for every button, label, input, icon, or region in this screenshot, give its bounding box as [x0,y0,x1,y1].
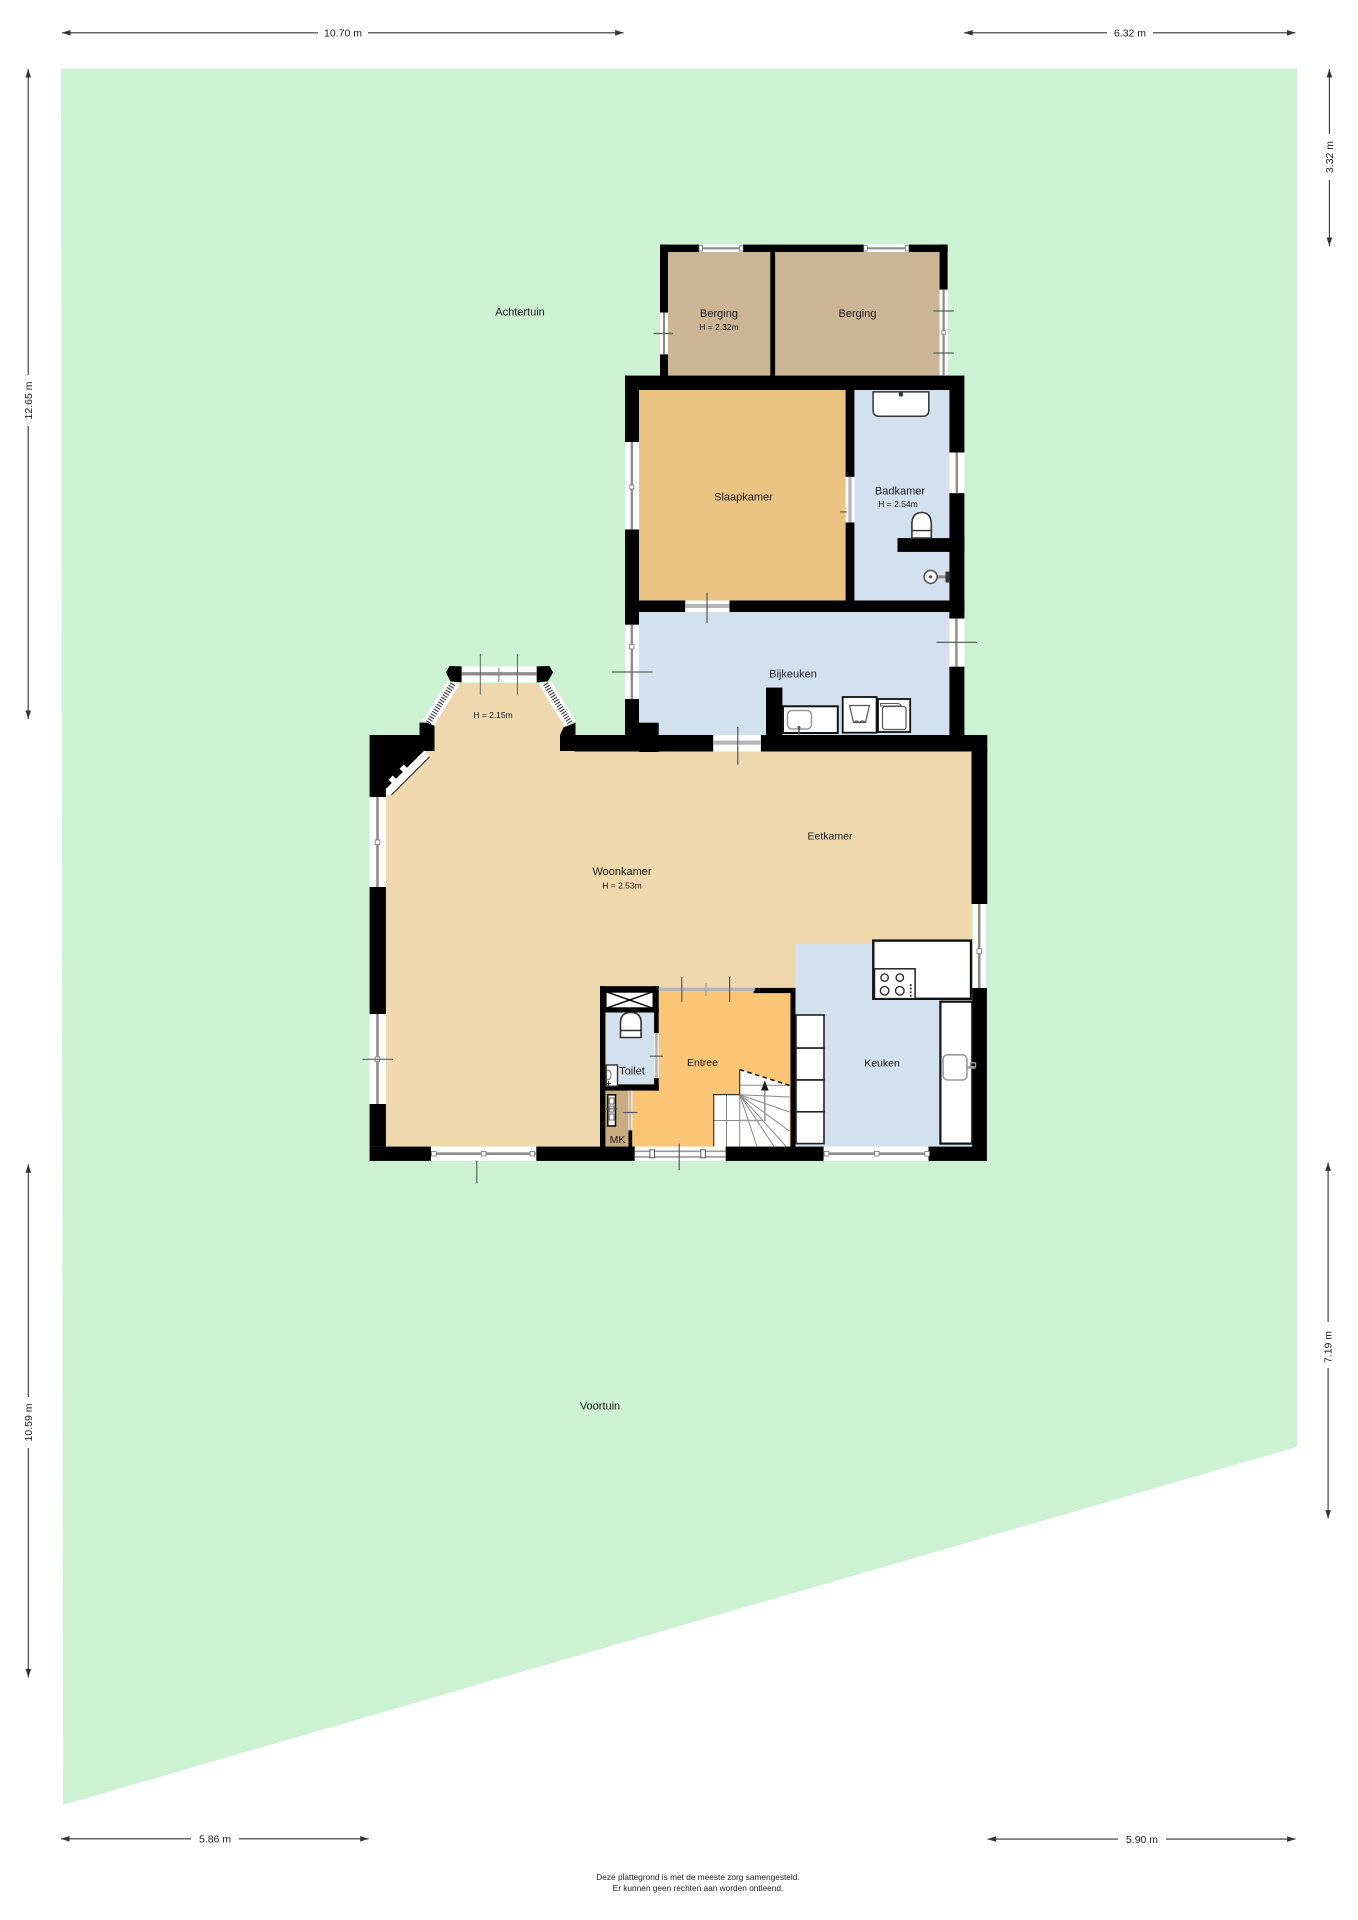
svg-text:3.32 m: 3.32 m [1324,141,1336,173]
svg-text:Entree: Entree [687,1057,718,1069]
svg-text:Keuken: Keuken [864,1058,900,1070]
svg-text:Badkamer: Badkamer [875,486,925,498]
svg-text:H = 2.32m: H = 2.32m [699,322,738,332]
svg-text:Er kunnen geen rechten aan wor: Er kunnen geen rechten aan worden ontlee… [613,1883,784,1893]
svg-text:10.59 m: 10.59 m [23,1403,35,1441]
svg-text:Achtertuin: Achtertuin [495,307,545,319]
svg-text:H = 2.54m: H = 2.54m [878,499,917,509]
svg-text:Slaapkamer: Slaapkamer [714,492,773,504]
svg-text:MK: MK [610,1134,626,1146]
svg-text:12.65 m: 12.65 m [23,381,35,419]
svg-text:H = 2.53m: H = 2.53m [602,881,641,891]
svg-text:5.90 m: 5.90 m [1126,1834,1158,1846]
svg-text:Woonkamer: Woonkamer [592,866,651,878]
svg-text:5.86 m: 5.86 m [199,1834,231,1846]
svg-text:7.19 m: 7.19 m [1323,1331,1335,1363]
svg-text:Voortuin: Voortuin [580,1401,620,1413]
svg-text:10.70 m: 10.70 m [324,28,362,40]
svg-text:Berging: Berging [839,308,877,320]
svg-text:6.32 m: 6.32 m [1114,28,1146,40]
svg-text:Deze plattegrond is met de mee: Deze plattegrond is met de meeste zorg s… [596,1872,799,1882]
svg-text:Berging: Berging [700,308,738,320]
svg-text:Bijkeuken: Bijkeuken [769,669,817,681]
svg-text:H = 2.15m: H = 2.15m [473,710,512,720]
svg-text:Toilet: Toilet [619,1066,645,1078]
svg-text:Eetkamer: Eetkamer [808,831,853,843]
